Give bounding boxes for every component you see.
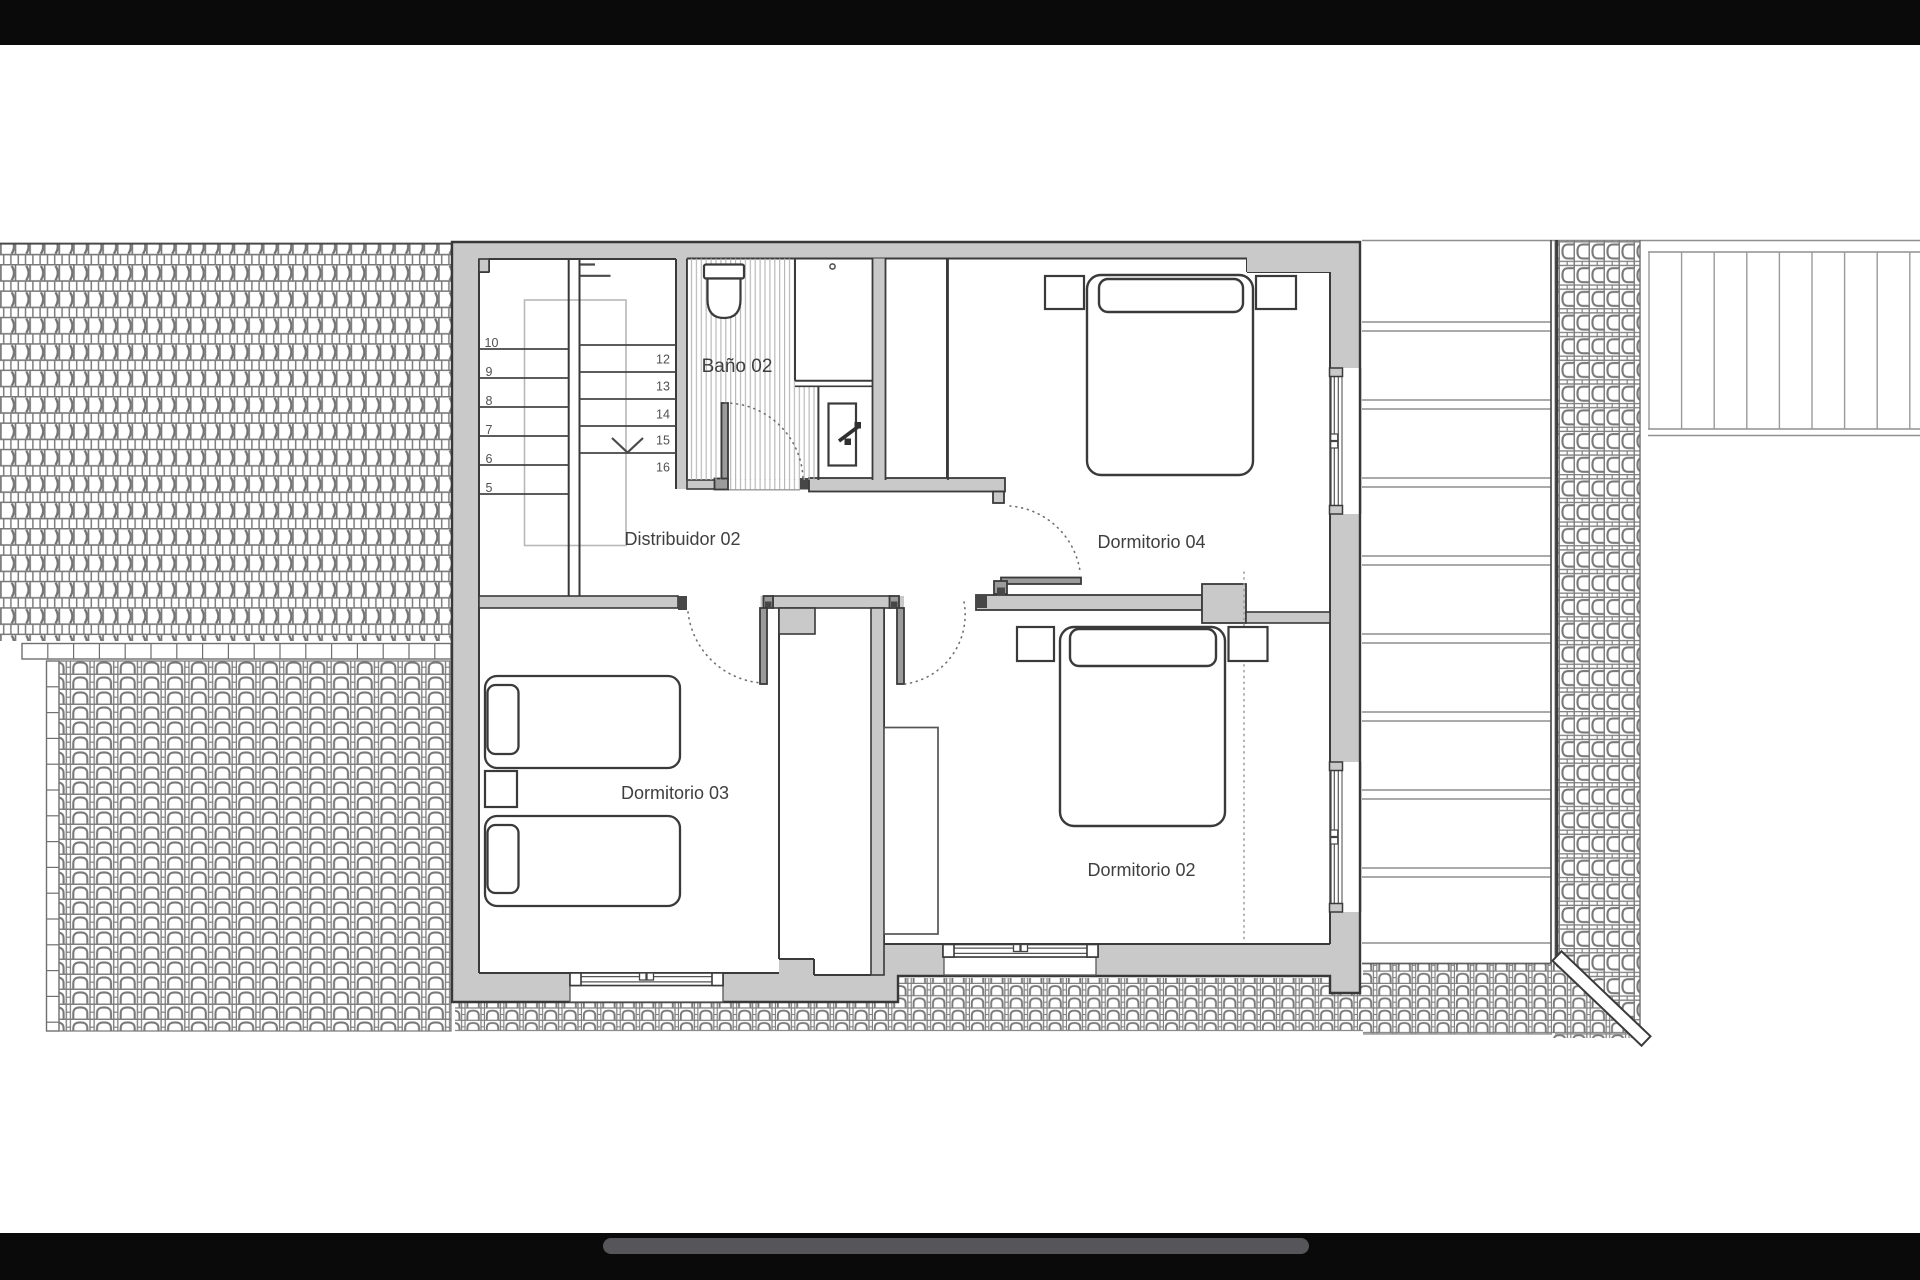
svg-text:6: 6: [486, 452, 493, 466]
svg-text:12: 12: [656, 353, 670, 367]
svg-text:Dormitorio 03: Dormitorio 03: [621, 783, 729, 803]
svg-text:5: 5: [486, 481, 493, 495]
svg-text:16: 16: [656, 461, 670, 475]
svg-text:10: 10: [485, 336, 499, 350]
svg-text:Distribuidor 02: Distribuidor 02: [624, 529, 740, 549]
svg-text:15: 15: [656, 434, 670, 448]
svg-text:9: 9: [486, 365, 493, 379]
svg-text:14: 14: [656, 408, 670, 422]
svg-text:8: 8: [486, 394, 493, 408]
svg-text:Baño 02: Baño 02: [702, 356, 773, 377]
svg-text:7: 7: [486, 423, 493, 437]
svg-text:Dormitorio 02: Dormitorio 02: [1087, 860, 1195, 880]
svg-text:Dormitorio 04: Dormitorio 04: [1097, 532, 1205, 552]
svg-text:13: 13: [656, 380, 670, 394]
